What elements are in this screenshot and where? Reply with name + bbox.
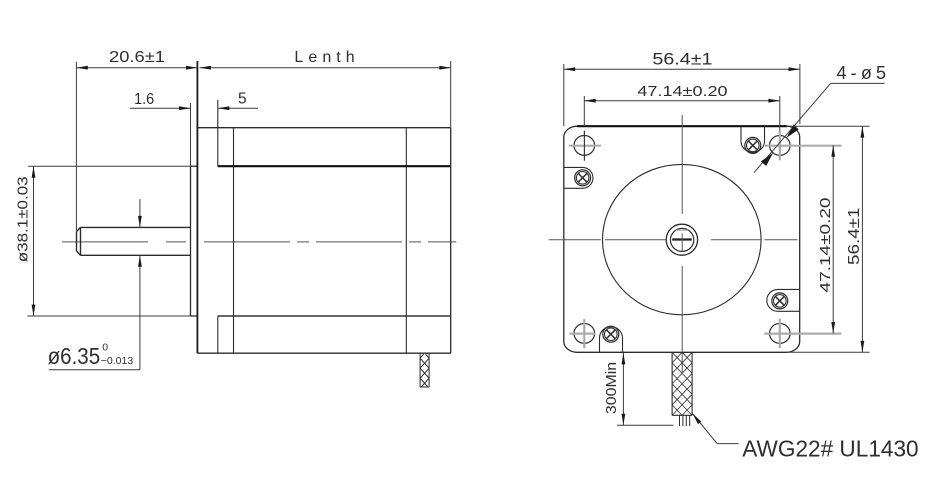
svg-text:ø38.1±0.03: ø38.1±0.03 [15,176,32,262]
svg-text:47.14±0.20: 47.14±0.20 [637,83,727,100]
svg-text:0: 0 [102,342,108,354]
svg-text:56.4±1: 56.4±1 [652,50,712,68]
svg-text:20.6±1: 20.6±1 [109,49,165,66]
svg-text:ø6.35: ø6.35 [48,343,101,369]
svg-text:AWG22# UL1430: AWG22# UL1430 [742,435,918,461]
svg-text:5: 5 [238,91,247,108]
svg-text:1.6: 1.6 [134,91,154,108]
svg-text:47.14±0.20: 47.14±0.20 [817,198,834,293]
svg-text:56.4±1: 56.4±1 [846,207,863,265]
svg-text:−0.013: −0.013 [101,355,134,367]
svg-text:4-ø5: 4-ø5 [837,63,887,83]
svg-text:300Min: 300Min [603,362,620,414]
